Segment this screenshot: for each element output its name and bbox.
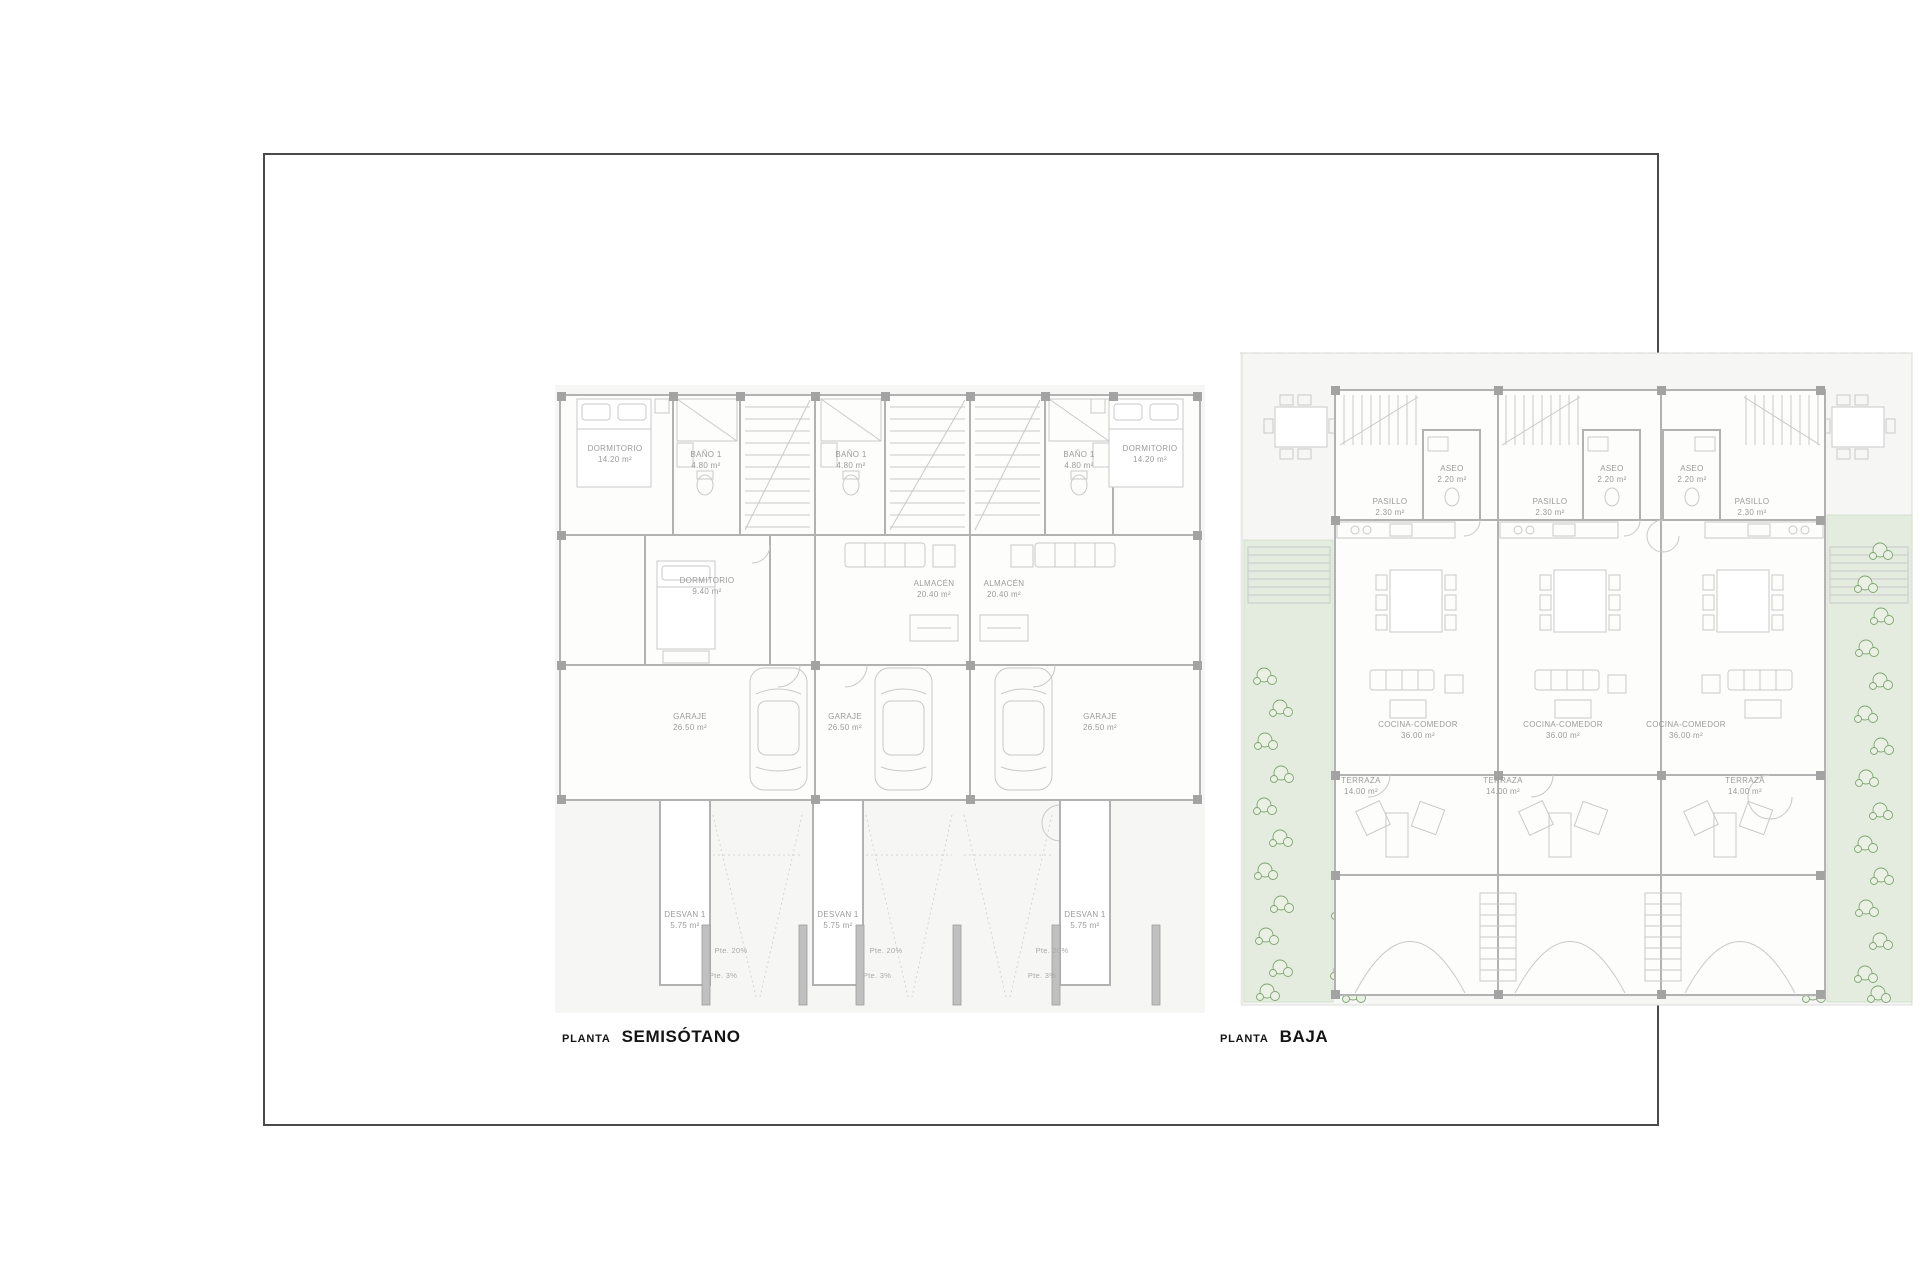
room-label: PASILLO2.30 m² [1533,497,1568,519]
ramp-slope-label: Pte. 20% [870,946,903,956]
room-label: GARAJE26.50 m² [828,712,862,734]
room-label: TERRAZA14.00 m² [1483,776,1522,798]
room-label: DORMITORIO14.20 m² [1123,444,1178,466]
room-label: BAÑO 14.80 m² [835,450,866,472]
room-label: BAÑO 14.80 m² [1063,450,1094,472]
room-label: COCINA-COMEDOR36.00 m² [1523,720,1603,742]
drawing-sheet-page: { "sheet": {"border_color": "#4a4a4a", "… [0,0,1920,1280]
room-label: GARAJE26.50 m² [673,712,707,734]
room-label: PASILLO2.30 m² [1735,497,1770,519]
room-label: ALMACÉN20.40 m² [984,579,1025,601]
room-label: PASILLO2.30 m² [1373,497,1408,519]
plan-title-semisotano: PLANTA SEMISÓTANO [562,1027,741,1047]
room-label: DORMITORIO14.20 m² [588,444,643,466]
plan-title-name: BAJA [1280,1027,1329,1047]
room-label: COCINA-COMEDOR36.00 m² [1646,720,1726,742]
room-label: ASEO2.20 m² [1597,464,1626,486]
room-label: DESVAN 15.75 m² [817,910,858,932]
ramp-slope-label: Pte. 20% [1036,946,1069,956]
floorplan-semisotano: DORMITORIO14.20 m²BAÑO 14.80 m²BAÑO 14.8… [555,385,1205,1015]
ramp-slope-label: Pte. 3% [1028,971,1056,981]
plan-title-name: SEMISÓTANO [622,1027,741,1047]
plan-title-baja: PLANTA BAJA [1220,1027,1328,1047]
room-label: COCINA-COMEDOR36.00 m² [1378,720,1458,742]
baja-label-layer: ASEO2.20 m²ASEO2.20 m²ASEO2.20 m²PASILLO… [1240,345,1920,1025]
room-label: ASEO2.20 m² [1437,464,1466,486]
ramp-slope-label: Pte. 20% [715,946,748,956]
floorplan-baja: ASEO2.20 m²ASEO2.20 m²ASEO2.20 m²PASILLO… [1240,345,1920,1025]
room-label: DESVAN 15.75 m² [664,910,705,932]
room-label: ASEO2.20 m² [1677,464,1706,486]
plan-title-prefix: PLANTA [1220,1033,1269,1045]
ramp-slope-label: Pte. 3% [863,971,891,981]
room-label: ALMACÉN20.40 m² [914,579,955,601]
drawing-sheet-border: DORMITORIO14.20 m²BAÑO 14.80 m²BAÑO 14.8… [263,153,1659,1126]
plan-title-prefix: PLANTA [562,1033,611,1045]
room-label: DESVAN 15.75 m² [1064,910,1105,932]
room-label: TERRAZA14.00 m² [1725,776,1764,798]
semisotano-label-layer: DORMITORIO14.20 m²BAÑO 14.80 m²BAÑO 14.8… [555,385,1205,1015]
ramp-slope-label: Pte. 3% [709,971,737,981]
room-label: BAÑO 14.80 m² [690,450,721,472]
room-label: DORMITORIO9.40 m² [680,576,735,598]
room-label: GARAJE26.50 m² [1083,712,1117,734]
room-label: TERRAZA14.00 m² [1341,776,1380,798]
